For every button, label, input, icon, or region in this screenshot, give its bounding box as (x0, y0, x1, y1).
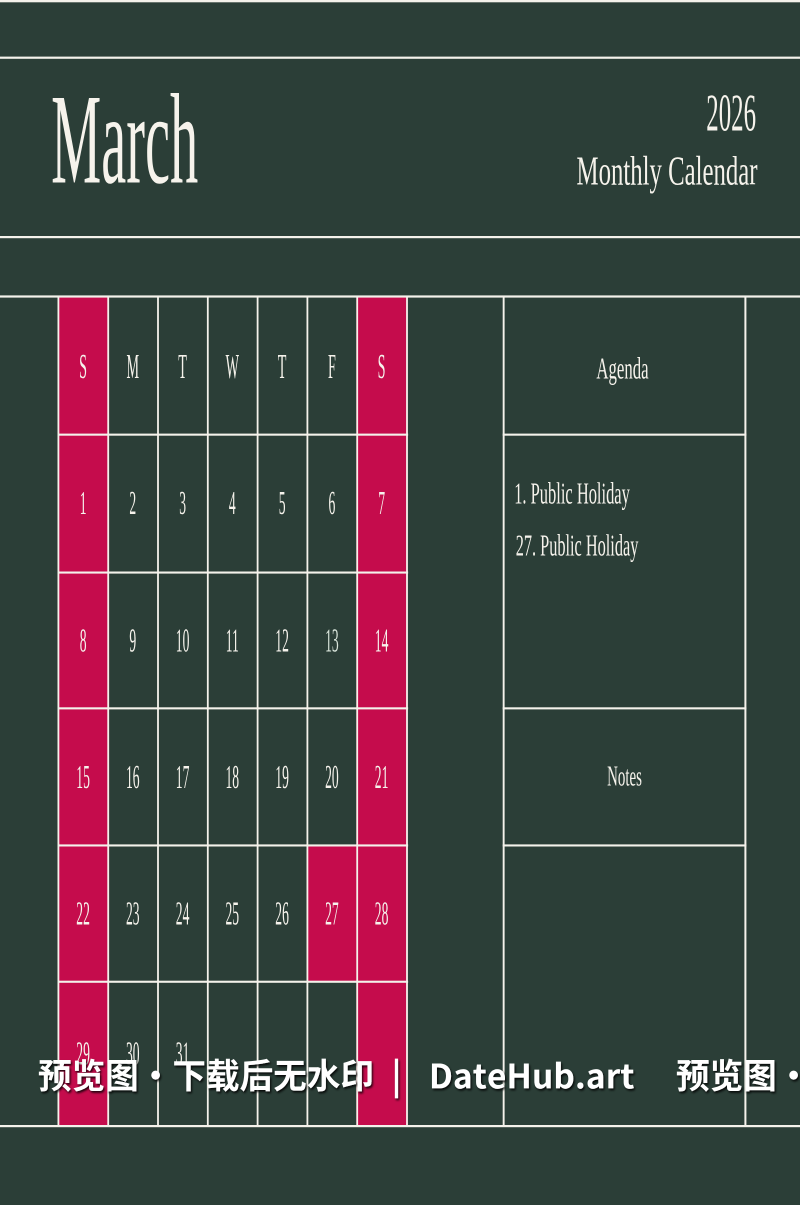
svg-text:1. Public Holiday: 1. Public Holiday (514, 477, 630, 511)
svg-text:2026: 2026 (706, 83, 756, 142)
svg-text:12: 12 (275, 621, 289, 659)
svg-text:T: T (278, 347, 287, 386)
svg-text:11: 11 (226, 621, 239, 659)
svg-text:17: 17 (176, 758, 190, 796)
svg-text:F: F (328, 347, 336, 386)
svg-text:Notes: Notes (607, 760, 642, 791)
svg-text:28: 28 (375, 894, 389, 932)
svg-text:23: 23 (126, 894, 140, 932)
svg-text:7: 7 (378, 484, 385, 522)
svg-text:21: 21 (375, 758, 389, 796)
svg-text:14: 14 (375, 621, 389, 659)
svg-text:S: S (79, 347, 87, 386)
svg-text:T: T (178, 347, 187, 386)
svg-text:13: 13 (325, 621, 339, 659)
svg-text:18: 18 (226, 758, 240, 796)
svg-text:16: 16 (126, 758, 140, 796)
svg-text:March: March (51, 67, 198, 211)
svg-text:5: 5 (279, 484, 286, 522)
svg-text:27: 27 (325, 894, 339, 932)
svg-text:15: 15 (76, 758, 90, 796)
svg-text:6: 6 (329, 484, 336, 522)
svg-text:Agenda: Agenda (596, 352, 648, 386)
svg-text:20: 20 (325, 758, 339, 796)
svg-text:19: 19 (275, 758, 289, 796)
svg-text:22: 22 (76, 894, 90, 932)
svg-text:1: 1 (80, 484, 87, 522)
svg-text:S: S (378, 347, 386, 386)
svg-text:Monthly Calendar: Monthly Calendar (577, 149, 758, 194)
svg-text:4: 4 (229, 484, 236, 522)
svg-text:10: 10 (176, 621, 190, 659)
svg-text:M: M (127, 347, 140, 386)
svg-text:27. Public Holiday: 27. Public Holiday (516, 529, 639, 563)
svg-text:8: 8 (80, 621, 87, 659)
svg-text:9: 9 (129, 621, 136, 659)
svg-text:24: 24 (176, 894, 190, 932)
svg-text:3: 3 (179, 484, 186, 522)
svg-text:25: 25 (226, 894, 240, 932)
svg-text:26: 26 (275, 894, 289, 932)
svg-text:W: W (226, 347, 240, 386)
svg-text:2: 2 (129, 484, 136, 522)
